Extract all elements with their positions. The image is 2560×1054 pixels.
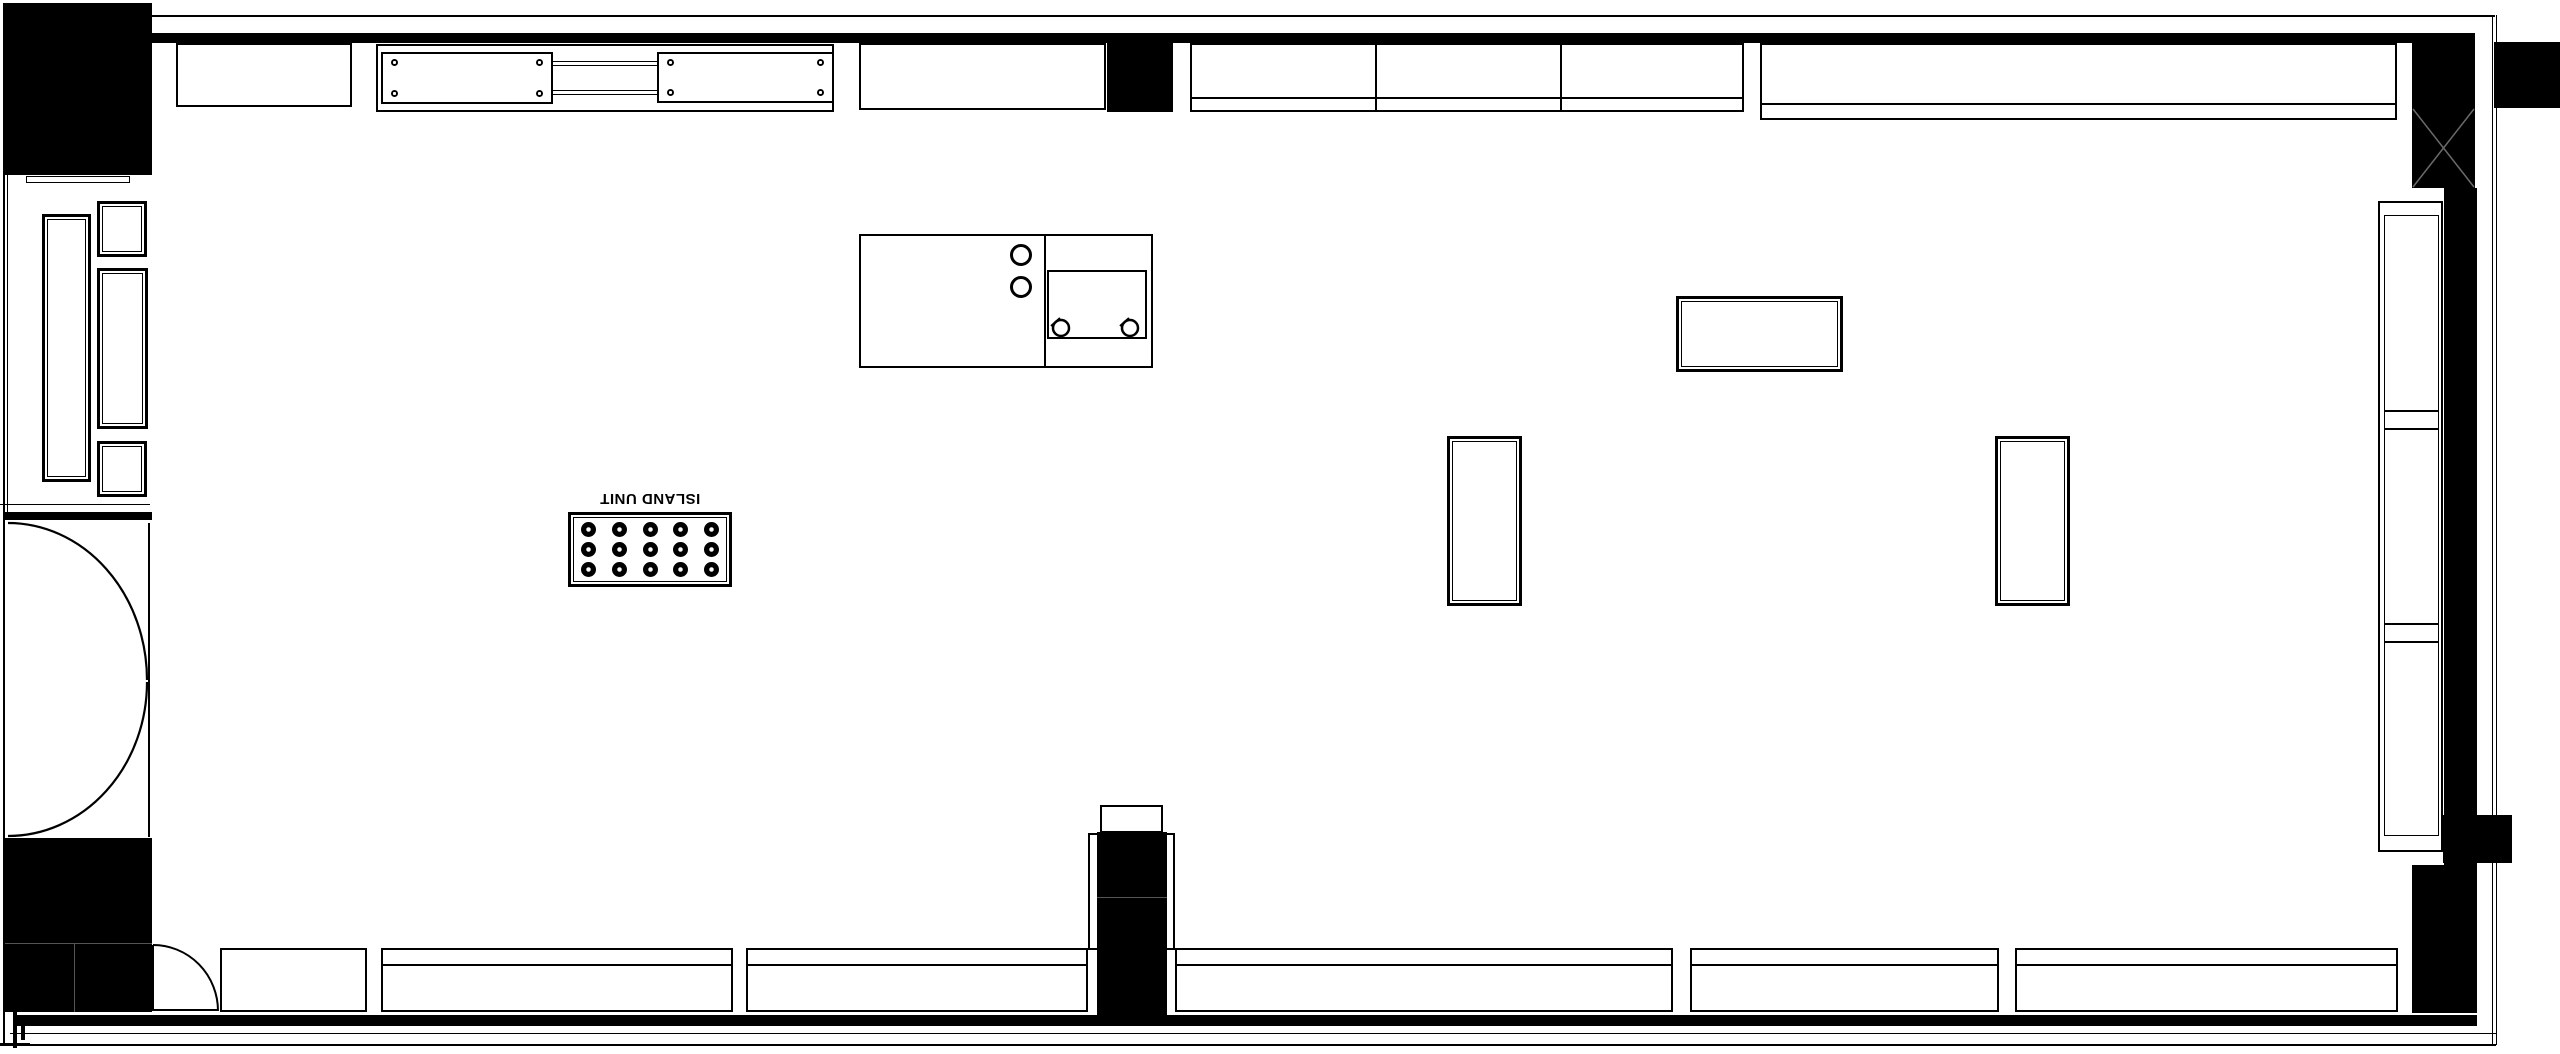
x-braced-column	[2412, 108, 2475, 188]
appliance-connector-line	[553, 90, 657, 91]
appliance-panel-left	[381, 52, 553, 104]
burner-dot-icon	[673, 542, 688, 557]
appliance-connector-line	[553, 61, 657, 62]
counter-edge-line	[1175, 964, 1673, 966]
boundary-right-line-outer	[2492, 15, 2493, 1045]
top-cabinet-b	[859, 43, 1106, 110]
column-seam	[1097, 897, 1167, 898]
table-left	[1447, 436, 1522, 606]
wall-band-bottom	[14, 1015, 2477, 1026]
burner-dot-icon	[612, 562, 627, 577]
burner-row	[581, 562, 719, 577]
sink-unit-basin	[1047, 270, 1147, 339]
bottom-cabinet-6	[2015, 948, 2398, 1012]
wall-column-top-left	[5, 3, 152, 175]
right-cabinet-divider	[2384, 428, 2439, 430]
right-cabinet-divider	[2384, 623, 2439, 625]
boundary-top-line	[150, 15, 2495, 17]
wall-band-right	[2444, 188, 2477, 865]
wall-column-bottom-right	[2412, 865, 2477, 1013]
wall-seam-vertical	[74, 943, 75, 1012]
counter-edge-line	[1690, 964, 1999, 966]
burner-dot-icon	[704, 562, 719, 577]
left-cabinet-box-3	[97, 441, 147, 497]
wall-column-top-right	[2412, 43, 2475, 108]
wall-stub-right	[2443, 815, 2512, 863]
bottom-cabinet-2	[381, 948, 733, 1012]
bottom-cabinet-4	[1175, 948, 1673, 1012]
screw-icon	[536, 59, 543, 66]
plan-symbol-overlay	[0, 0, 2560, 1054]
island-unit	[568, 512, 732, 587]
screw-icon	[391, 90, 398, 97]
wall-column-bottom-left	[5, 838, 152, 1012]
boundary-bottom-line-inner	[10, 1033, 2496, 1034]
burner-row	[581, 542, 719, 557]
boundary-bottom-line-outer	[3, 1044, 2496, 1046]
counter-edge-line	[746, 964, 1088, 966]
burner-dot-icon	[673, 562, 688, 577]
burner-dot-icon	[704, 522, 719, 537]
wall-band-top	[152, 33, 2475, 43]
door-swing-arc-single	[153, 945, 218, 1011]
wall-stub-left-above-door	[3, 512, 152, 520]
screw-icon	[391, 59, 398, 66]
burner-row	[581, 522, 719, 537]
burner-dot-icon	[643, 522, 658, 537]
bottom-cabinet-5	[1690, 948, 1999, 1012]
wall-step-detail-c	[0, 1043, 30, 1046]
line-above-left-stub	[0, 504, 150, 505]
bottom-cabinet-3	[746, 948, 1088, 1012]
wall-seam-horizontal	[5, 943, 152, 944]
counter-edge-line	[2015, 964, 2398, 966]
island-burner-grid	[581, 522, 719, 577]
burner-dot-icon	[581, 562, 596, 577]
counter-edge-line	[1190, 97, 1744, 99]
wall-column-bottom-middle	[1097, 832, 1167, 1015]
counter-edge-line	[381, 964, 733, 966]
bottom-cabinet-1	[220, 948, 367, 1012]
door-swing-arc-top	[8, 523, 147, 680]
top-cabinet-run-d	[1760, 43, 2397, 120]
left-cabinet-box-1	[97, 201, 147, 257]
wall-block-top-middle	[1107, 42, 1173, 112]
table-right	[1995, 436, 2070, 606]
screw-icon	[667, 59, 674, 66]
cabinet-divider	[1560, 43, 1562, 112]
single-door-open-line	[152, 1009, 218, 1011]
top-cabinet-a	[176, 43, 352, 107]
appliance-panel-right	[657, 52, 834, 103]
floor-plan: ISLAND UNIT	[0, 0, 2560, 1054]
appliance-connector-line	[553, 65, 657, 66]
counter-edge-line	[1760, 103, 2397, 105]
screw-icon	[536, 90, 543, 97]
left-tall-cabinet	[42, 214, 91, 482]
burner-dot-icon	[643, 562, 658, 577]
screw-icon	[817, 59, 824, 66]
appliance-connector-line	[553, 94, 657, 95]
right-cabinet-divider	[2384, 641, 2439, 643]
double-door-frame-line	[148, 523, 150, 837]
right-cabinet-divider	[2384, 410, 2439, 412]
column-cap-box	[1100, 805, 1163, 833]
table-top	[1676, 296, 1843, 372]
burner-dot-icon	[581, 542, 596, 557]
left-cabinet-box-2	[97, 268, 148, 429]
burner-dot-icon	[704, 542, 719, 557]
burner-dot-icon	[612, 542, 627, 557]
door-swing-arc-bottom	[8, 682, 147, 836]
cabinet-divider	[1375, 43, 1377, 112]
single-door-leaf	[152, 945, 154, 1011]
island-unit-label: ISLAND UNIT	[568, 488, 732, 508]
burner-dot-icon	[643, 542, 658, 557]
sink-unit-divider	[1044, 234, 1046, 368]
boundary-right-line-inner	[2496, 15, 2497, 1045]
burner-dot-icon	[612, 522, 627, 537]
top-cabinet-run-c	[1190, 43, 1744, 112]
right-cabinet-inner	[2384, 215, 2439, 836]
boundary-left-inner-line	[7, 175, 8, 515]
screw-icon	[817, 89, 824, 96]
burner-dot-icon	[581, 522, 596, 537]
left-wall-strip	[26, 176, 130, 183]
screw-icon	[667, 89, 674, 96]
burner-dot-icon	[673, 522, 688, 537]
wall-block-outside-right	[2494, 42, 2560, 108]
